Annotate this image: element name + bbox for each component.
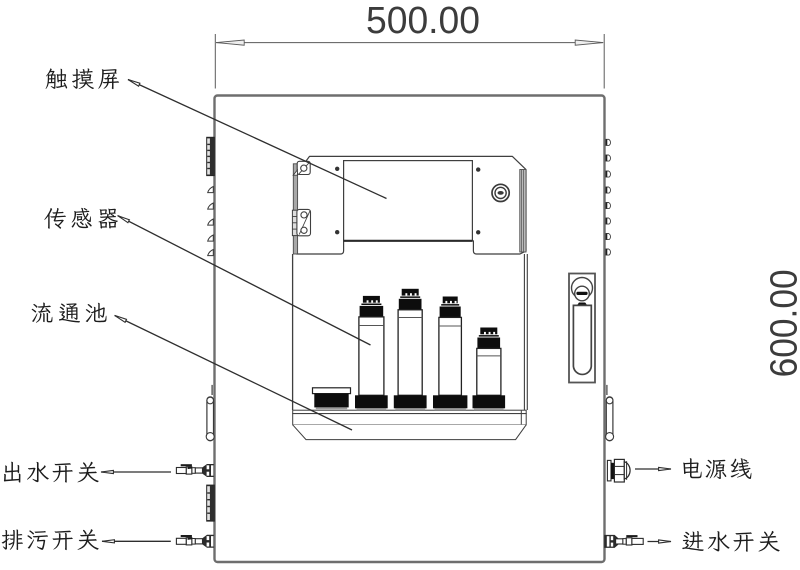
svg-text:600.00: 600.00 [764, 269, 800, 377]
svg-text:500.00: 500.00 [366, 0, 480, 42]
